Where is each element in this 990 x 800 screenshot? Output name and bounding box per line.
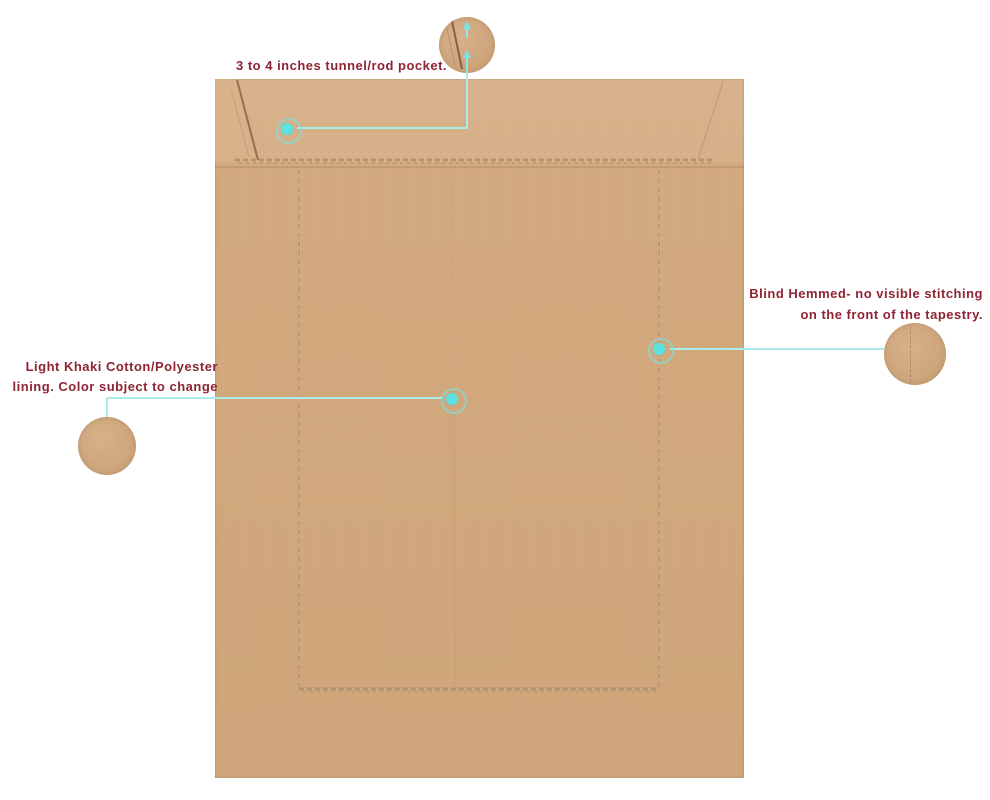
blind-hem-label-line1: Blind Hemmed- no visible stitching bbox=[738, 283, 983, 304]
blind-hem-callout-dot bbox=[653, 343, 665, 355]
measure-arrow-top-stem bbox=[466, 29, 468, 38]
lining-callout-dot bbox=[446, 393, 458, 405]
rod-pocket-connector-horizontal bbox=[297, 127, 468, 129]
lining-connector-vertical bbox=[106, 398, 108, 417]
blind-hem-connector-horizontal bbox=[670, 348, 884, 350]
measure-arrow-up-top-icon bbox=[463, 21, 471, 29]
top-right-highlight-crease bbox=[667, 99, 685, 149]
lining-label: Light Khaki Cotton/Polyester lining. Col… bbox=[6, 357, 218, 397]
tapestry-back-panel bbox=[215, 79, 744, 778]
rod-pocket-detail-circle bbox=[439, 17, 495, 73]
rod-pocket-label: 3 to 4 inches tunnel/rod pocket. bbox=[236, 58, 447, 73]
product-annotation-image: 3 to 4 inches tunnel/rod pocket. Blind H… bbox=[0, 0, 990, 800]
measure-arrow-bottom-stem bbox=[466, 58, 468, 73]
lining-detail-circle bbox=[78, 417, 136, 475]
lining-connector-horizontal bbox=[107, 397, 442, 399]
corner-fold-flap bbox=[215, 79, 258, 161]
top-right-crease bbox=[698, 82, 723, 159]
blind-hem-detail-circle bbox=[884, 323, 946, 385]
detail-fold-edge bbox=[452, 21, 462, 69]
detail-hem-seam bbox=[910, 326, 911, 382]
lining-label-line1: Light Khaki Cotton/Polyester bbox=[6, 357, 218, 377]
rod-pocket-connector-vertical bbox=[466, 72, 468, 129]
measure-arrow-up-bottom-icon bbox=[463, 50, 471, 58]
blind-hem-label: Blind Hemmed- no visible stitching on th… bbox=[738, 283, 983, 325]
lining-label-line2: lining. Color subject to change bbox=[6, 377, 218, 397]
rod-pocket-callout-dot bbox=[281, 123, 293, 135]
fabric-stitch-details bbox=[215, 79, 744, 778]
center-crease bbox=[452, 183, 455, 687]
blind-hem-label-line2: on the front of the tapestry. bbox=[738, 304, 983, 325]
